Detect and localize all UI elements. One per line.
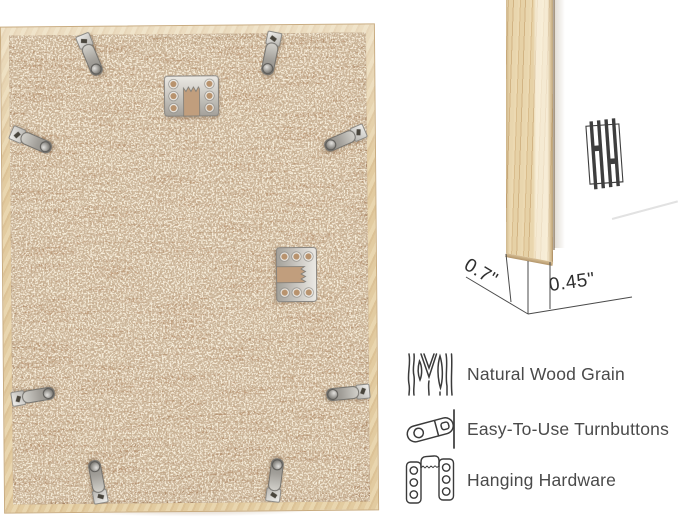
turnbutton-icon <box>401 407 459 451</box>
mat-shadow <box>554 0 565 248</box>
feature-row-hanging-hardware: Hanging Hardware <box>398 452 616 508</box>
wood-grain-icon <box>406 352 454 396</box>
sawtooth-hanger-hardware <box>270 246 317 302</box>
mat-bottom-edge <box>612 200 678 219</box>
frame-back-photo <box>0 23 379 513</box>
feature-label: Hanging Hardware <box>467 470 616 491</box>
hanging-hardware-icon <box>403 452 457 508</box>
sawtooth-hanger-hardware <box>163 75 219 122</box>
turnbutton-slot <box>81 38 87 42</box>
frame-mat-gap <box>553 0 555 250</box>
frame-corner-detail: 0.7" 0.45" <box>430 0 679 335</box>
feature-row-wood-grain: Natural Wood Grain <box>398 350 625 398</box>
hh-monogram-logo-icon <box>582 118 628 192</box>
wood-moulding-closeup <box>506 0 553 262</box>
feature-label: Natural Wood Grain <box>467 364 625 385</box>
feature-row-turnbuttons: Easy-To-Use Turnbuttons <box>398 406 669 452</box>
feature-label: Easy-To-Use Turnbuttons <box>467 419 669 440</box>
product-infographic: 0.7" 0.45" Natural Wood Grain <box>0 0 679 523</box>
